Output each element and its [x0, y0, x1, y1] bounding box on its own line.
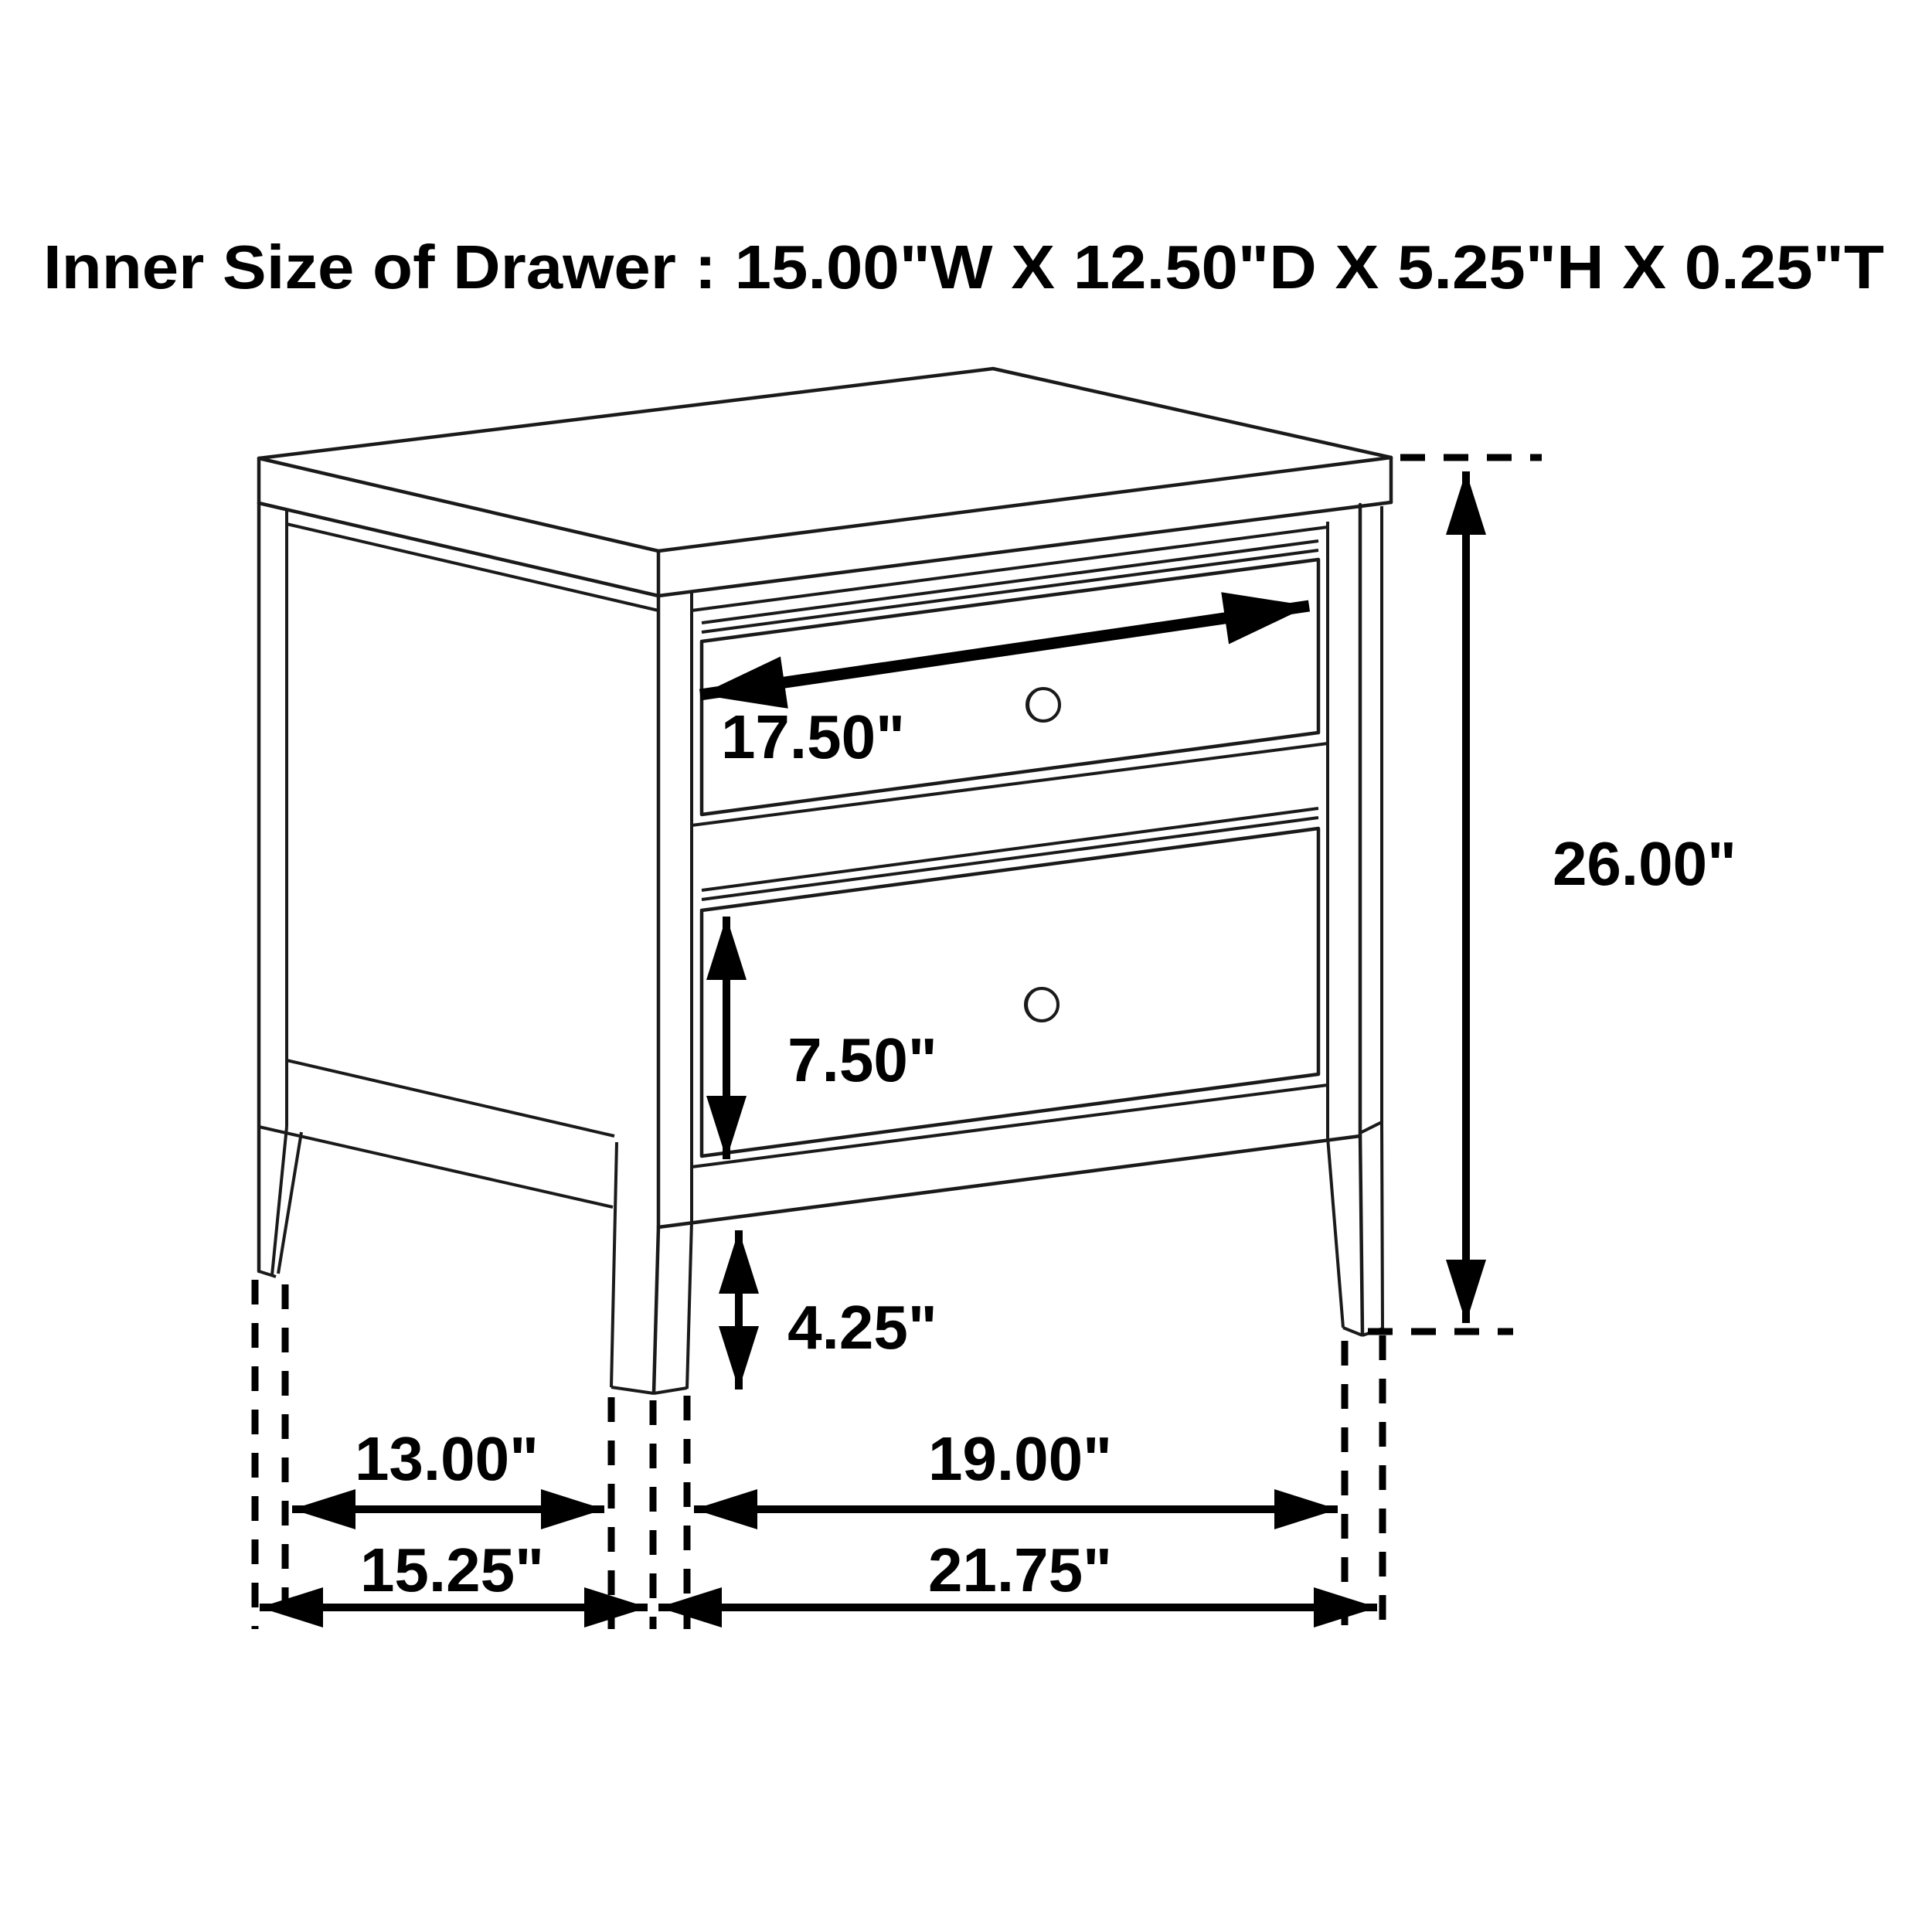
page-title: Inner Size of Drawer : 15.00"W X 12.50"D…	[43, 233, 1884, 301]
dimension-side-outer-depth: 15.25"	[260, 1536, 648, 1607]
diagram-canvas: Inner Size of Drawer : 15.00"W X 12.50"D…	[0, 0, 1932, 1932]
front-outer-width-label: 21.75"	[928, 1536, 1112, 1604]
left-side-panel	[259, 503, 658, 1271]
dimension-side-inner-depth: 13.00"	[292, 1424, 604, 1509]
dimension-second-drawer-height: 7.50"	[726, 917, 937, 1159]
front-right-leg	[1328, 1122, 1383, 1335]
lower-drawer-knob	[1026, 988, 1058, 1021]
dimension-annotations: 17.50" 26.00" 7.50" 4.25" 13.00" 19.00" …	[260, 471, 1736, 1607]
upper-drawer-knob	[1027, 689, 1060, 721]
dimension-overall-height: 26.00"	[1466, 471, 1736, 1323]
back-left-leg	[259, 1127, 301, 1277]
nightstand-dimension-diagram: Inner Size of Drawer : 15.00"W X 12.50"D…	[0, 0, 1932, 1932]
leg-height-label: 4.25"	[787, 1293, 937, 1362]
front-inner-width-label: 19.00"	[928, 1424, 1112, 1493]
dimension-leg-height: 4.25"	[739, 1230, 937, 1389]
second-drawer-height-label: 7.50"	[787, 1026, 937, 1094]
front-left-leg	[611, 1142, 692, 1393]
nightstand-drawing	[259, 369, 1391, 1393]
side-outer-depth-label: 15.25"	[360, 1536, 544, 1604]
dimension-front-outer-width: 21.75"	[658, 1536, 1377, 1607]
dimension-front-inner-width: 19.00"	[694, 1424, 1338, 1509]
side-inner-depth-label: 13.00"	[355, 1424, 539, 1493]
overall-height-label: 26.00"	[1553, 829, 1736, 898]
drawer-width-label: 17.50"	[721, 702, 905, 771]
